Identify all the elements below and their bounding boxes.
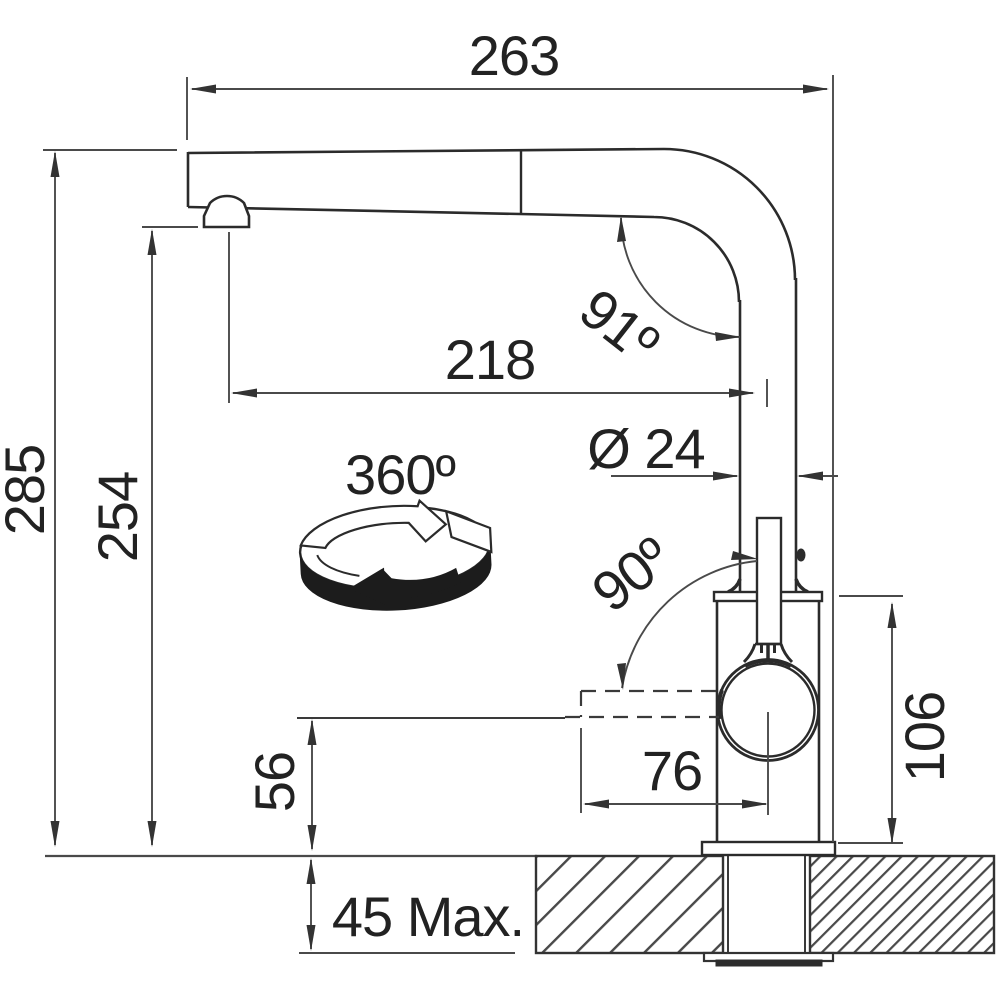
svg-text:45 Max.: 45 Max. xyxy=(332,885,524,948)
svg-text:285: 285 xyxy=(0,445,56,535)
svg-text:254: 254 xyxy=(86,472,149,562)
svg-text:56: 56 xyxy=(243,752,306,812)
svg-text:106: 106 xyxy=(893,692,956,782)
svg-text:76: 76 xyxy=(642,739,702,802)
svg-text:90º: 90º xyxy=(580,525,682,624)
svg-text:91º: 91º xyxy=(568,276,670,375)
svg-text:218: 218 xyxy=(445,328,535,391)
svg-text:Ø 24: Ø 24 xyxy=(587,417,704,480)
svg-text:360º: 360º xyxy=(345,443,455,506)
svg-text:263: 263 xyxy=(469,24,559,87)
